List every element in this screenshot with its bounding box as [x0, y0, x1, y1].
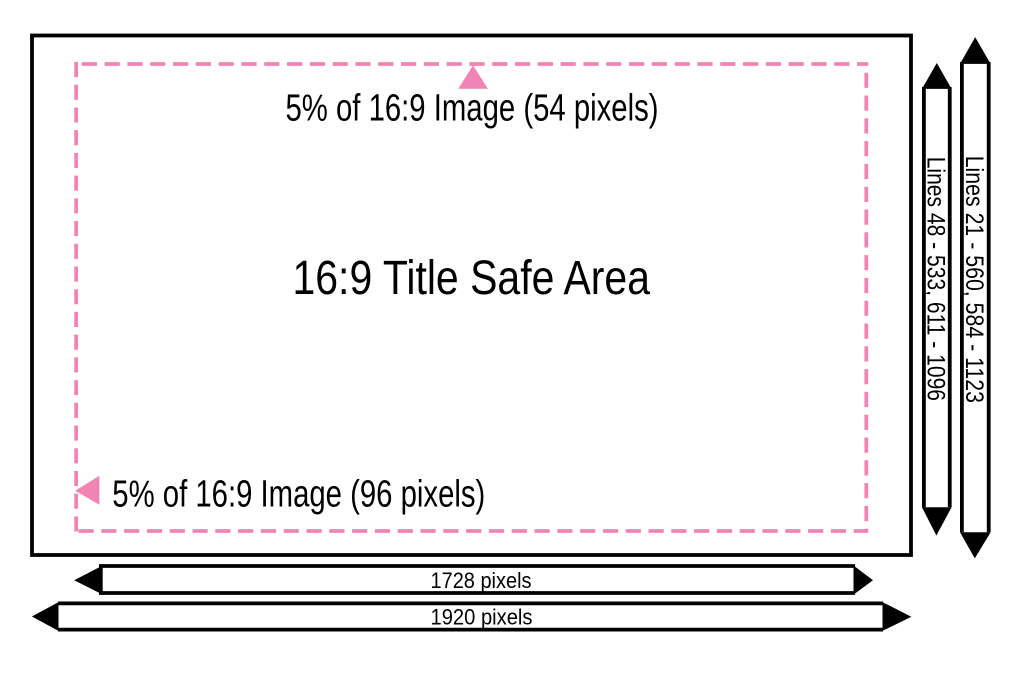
svg-text:5% of 16:9 Image (96 pixels): 5% of 16:9 Image (96 pixels) [112, 472, 485, 514]
svg-text:16:9 Title Safe Area: 16:9 Title Safe Area [293, 252, 651, 305]
svg-text:Lines 21 - 560, 584 - 1123: Lines 21 - 560, 584 - 1123 [960, 156, 988, 403]
svg-text:5% of 16:9 Image (54 pixels): 5% of 16:9 Image (54 pixels) [286, 87, 659, 129]
svg-text:Lines 48 - 533, 611 - 1096: Lines 48 - 533, 611 - 1096 [921, 157, 949, 401]
svg-text:1920 pixels: 1920 pixels [431, 605, 533, 630]
svg-text:1728 pixels: 1728 pixels [431, 568, 532, 593]
